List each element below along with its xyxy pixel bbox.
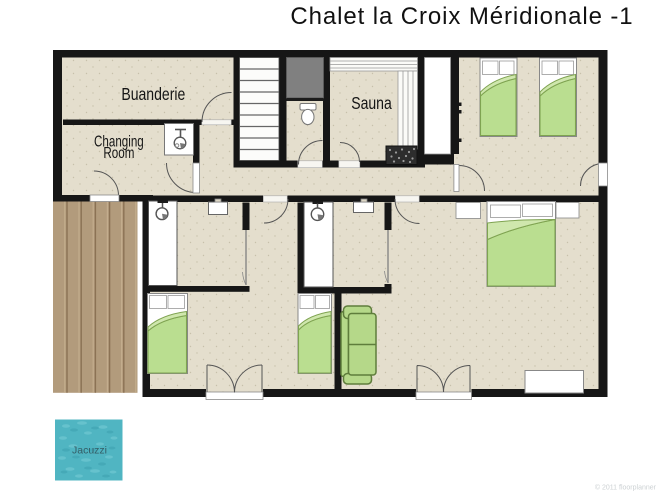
svg-text:Room: Room [103, 144, 134, 161]
svg-text:Jacuzzi: Jacuzzi [72, 445, 107, 457]
svg-text:Sauna: Sauna [351, 93, 392, 113]
svg-text:© 2011 floorplanner: © 2011 floorplanner [595, 484, 657, 492]
svg-text:Chalet la Croix Méridionale -1: Chalet la Croix Méridionale -1 [290, 3, 633, 30]
svg-text:Buanderie: Buanderie [121, 84, 185, 104]
